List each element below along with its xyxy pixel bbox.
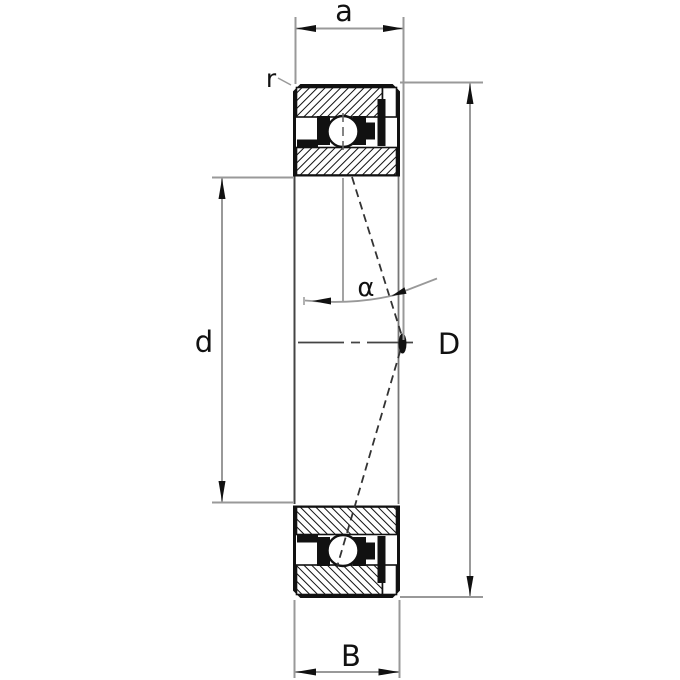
r-leader-line [278,78,291,85]
top-bearing-section [295,86,399,176]
arrowhead [219,481,226,502]
dim-label-r: r [266,64,277,93]
arrowhead [219,179,226,200]
contact-angle-annotation: α [304,178,437,305]
angle-label-alpha: α [357,273,374,303]
dim-label-B: B [341,639,361,673]
bearing-cross-section-diagram: a r d D B α [0,0,680,680]
dimension-d: d [195,178,293,503]
bottom-bearing-section [295,507,399,597]
arrowhead [379,669,400,676]
dim-label-D: D [438,327,460,361]
arrowhead [296,669,317,676]
dim-label-a: a [335,0,353,28]
arrowhead [296,25,316,32]
dimension-B: B [295,600,400,678]
dim-label-d: d [195,325,213,359]
arrowhead [312,298,331,305]
bearing-drawing-canvas: a r d D B α [0,0,680,680]
chamfer-annotation-r: r [266,64,291,93]
arrowhead [467,84,474,104]
dimension-D: D [400,83,483,598]
arrowhead [383,25,403,32]
arrowhead [467,576,474,596]
